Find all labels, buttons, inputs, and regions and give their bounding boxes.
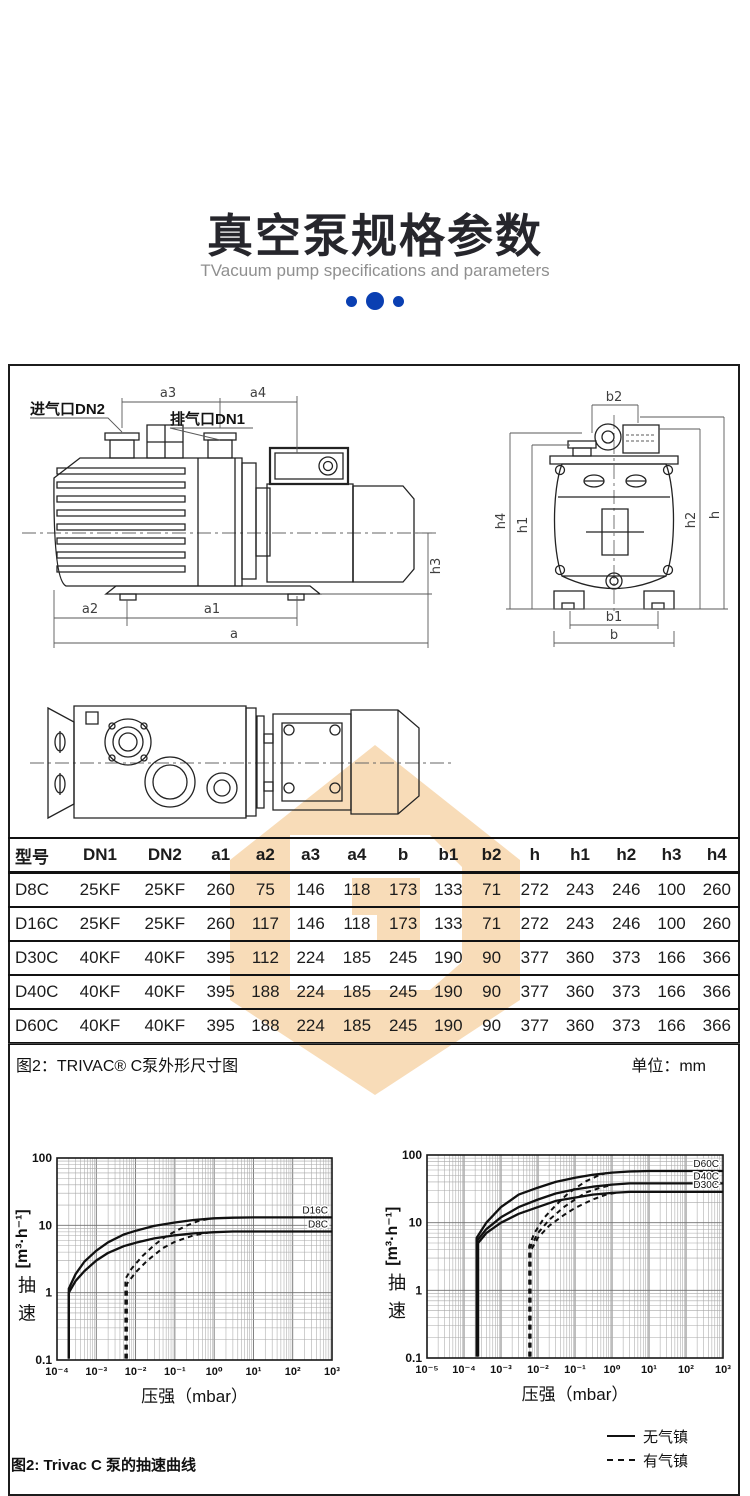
value-cell: 360 [557, 941, 603, 975]
inlet-label: 进气口DN2 [30, 400, 105, 418]
model-cell: D40C [8, 975, 68, 1009]
spec-table: 型号DN1DN2a1a2a3a4bb1b2hh1h2h3h4 D8C25KF25… [8, 837, 740, 1045]
value-cell: 272 [513, 907, 557, 941]
value-cell: 190 [426, 975, 470, 1009]
dot-icon [366, 292, 384, 310]
pumping-speed-chart-small-pumps: 10⁻⁴10⁻³10⁻²10⁻¹10⁰10¹10²10³1001010.1压强（… [8, 1143, 366, 1415]
value-cell: 118 [334, 907, 380, 941]
motor [267, 448, 414, 582]
dim-h2: h2 [684, 512, 699, 529]
value-cell: 185 [334, 1009, 380, 1044]
value-cell: 166 [649, 975, 693, 1009]
series-d60c [529, 1173, 606, 1357]
value-cell: 146 [288, 907, 334, 941]
value-cell: 377 [513, 975, 557, 1009]
y-axis-unit-label: [m³·h⁻¹] [14, 1209, 31, 1268]
value-cell: 25KF [132, 907, 198, 941]
value-cell: 71 [470, 907, 512, 941]
y-tick-label: 100 [402, 1148, 422, 1162]
x-tick-label: 10⁻² [527, 1364, 549, 1376]
value-cell: 173 [380, 907, 426, 941]
column-header: a3 [288, 838, 334, 873]
column-header: h [513, 838, 557, 873]
model-cell: D30C [8, 941, 68, 975]
table-row: D8C25KF25KF26075146118173133712722432461… [8, 873, 740, 908]
model-cell: D8C [8, 873, 68, 908]
value-cell: 360 [557, 1009, 603, 1044]
column-header: a4 [334, 838, 380, 873]
x-tick-label: 10² [678, 1364, 694, 1376]
value-cell: 373 [603, 941, 649, 975]
model-cell: D16C [8, 907, 68, 941]
dim-a1: a1 [204, 602, 220, 617]
value-cell: 243 [557, 873, 603, 908]
value-cell: 373 [603, 975, 649, 1009]
table-row: D60C40KF40KF3951882241852451909037736037… [8, 1009, 740, 1044]
series-d16c [125, 1219, 208, 1359]
legend-label: 有气镇 [643, 1450, 688, 1471]
value-cell: 377 [513, 1009, 557, 1044]
series-d30c [531, 1192, 619, 1356]
product-spec-page: 真空泵规格参数 TVacuum pump specifications and … [0, 0, 750, 1490]
dim-a3: a3 [160, 386, 176, 401]
dim-h3: h3 [429, 558, 444, 575]
dot-icon [393, 296, 404, 307]
value-cell: 366 [694, 941, 740, 975]
value-cell: 75 [243, 873, 287, 908]
value-cell: 395 [198, 1009, 243, 1044]
value-cell: 25KF [68, 907, 131, 941]
table-caption: 图2：TRIVAC® C泵外形尺寸图 [16, 1052, 238, 1076]
exhaust-port [204, 433, 236, 458]
x-tick-label: 10⁻³ [490, 1364, 512, 1376]
value-cell: 245 [380, 975, 426, 1009]
value-cell: 173 [380, 873, 426, 908]
spec-table-body: D8C25KF25KF26075146118173133712722432461… [8, 873, 740, 1044]
value-cell: 246 [603, 873, 649, 908]
column-header: a1 [198, 838, 243, 873]
x-tick-label: 10⁰ [603, 1364, 620, 1376]
x-tick-label: 10¹ [245, 1366, 261, 1378]
value-cell: 112 [243, 941, 287, 975]
x-tick-label: 10³ [324, 1366, 340, 1378]
table-header-row: 型号DN1DN2a1a2a3a4bb1b2hh1h2h3h4 [8, 838, 740, 873]
x-tick-label: 10⁻² [125, 1366, 147, 1378]
base-plate [106, 586, 320, 594]
value-cell: 246 [603, 907, 649, 941]
column-header: h2 [603, 838, 649, 873]
table-row: D16C25KF25KF2601171461181731337127224324… [8, 907, 740, 941]
y-tick-label: 10 [39, 1218, 53, 1232]
x-tick-label: 10² [285, 1366, 301, 1378]
value-cell: 366 [694, 1009, 740, 1044]
dim-h1: h1 [516, 517, 531, 534]
x-tick-label: 10⁻⁵ [415, 1364, 438, 1376]
exhaust-label: 排气口DN1 [170, 410, 245, 428]
value-cell: 133 [426, 873, 470, 908]
dim-b2: b2 [606, 390, 623, 405]
value-cell: 40KF [68, 941, 131, 975]
cooling-fins [57, 468, 185, 572]
figure-caption: 图2: Trivac C 泵的抽速曲线 [11, 1454, 196, 1475]
value-cell: 245 [380, 1009, 426, 1044]
chart-legend: 无气镇有气镇 [607, 1424, 688, 1472]
y-tick-label: 10 [409, 1216, 423, 1230]
page-title: 真空泵规格参数 [0, 200, 750, 266]
value-cell: 245 [380, 941, 426, 975]
value-cell: 188 [243, 975, 287, 1009]
column-header: 型号 [8, 838, 68, 873]
dim-b1: b1 [606, 610, 623, 625]
x-tick-label: 10⁻³ [85, 1366, 107, 1378]
value-cell: 117 [243, 907, 287, 941]
value-cell: 166 [649, 941, 693, 975]
column-header: h3 [649, 838, 693, 873]
x-axis-label: 压强（mbar） [522, 1385, 629, 1404]
value-cell: 166 [649, 1009, 693, 1044]
value-cell: 118 [334, 873, 380, 908]
x-tick-label: 10⁰ [206, 1366, 223, 1378]
y-axis-unit-label: [m³·h⁻¹] [384, 1207, 401, 1266]
value-cell: 71 [470, 873, 512, 908]
dim-h: h [708, 511, 723, 519]
column-header: h4 [694, 838, 740, 873]
x-tick-label: 10⁻¹ [564, 1364, 586, 1376]
column-header: b [380, 838, 426, 873]
value-cell: 224 [288, 1009, 334, 1044]
pump-side-view-drawing: a3 a4 a2 a1 a h3 进气口DN2 排气口DN1 [20, 368, 460, 668]
value-cell: 100 [649, 873, 693, 908]
y-tick-label: 0.1 [405, 1351, 422, 1365]
legend-item: 无气镇 [607, 1424, 688, 1448]
value-cell: 185 [334, 941, 380, 975]
column-header: DN2 [132, 838, 198, 873]
y-tick-label: 0.1 [35, 1353, 52, 1367]
y-axis-cn-label: 抽 [18, 1275, 36, 1295]
curve-label: D8C [308, 1219, 328, 1230]
value-cell: 377 [513, 941, 557, 975]
page-subtitle: TVacuum pump specifications and paramete… [0, 261, 750, 281]
value-cell: 90 [470, 941, 512, 975]
y-axis-cn-label: 抽 [388, 1273, 406, 1293]
solid-line-sample [607, 1435, 635, 1437]
value-cell: 40KF [68, 1009, 131, 1044]
dashed-line-sample [607, 1459, 635, 1461]
value-cell: 90 [470, 975, 512, 1009]
column-header: b1 [426, 838, 470, 873]
value-cell: 360 [557, 975, 603, 1009]
table-row: D30C40KF40KF3951122241852451909037736037… [8, 941, 740, 975]
column-header: h1 [557, 838, 603, 873]
unit-label: 单位：mm [631, 1052, 706, 1076]
x-tick-label: 10⁻⁴ [45, 1366, 68, 1378]
dim-a: a [230, 627, 238, 642]
value-cell: 190 [426, 1009, 470, 1044]
value-cell: 25KF [68, 873, 131, 908]
x-tick-label: 10³ [715, 1364, 731, 1376]
x-axis-label: 压强（mbar） [141, 1387, 248, 1406]
value-cell: 224 [288, 975, 334, 1009]
dim-h4: h4 [494, 513, 509, 530]
value-cell: 40KF [132, 975, 198, 1009]
value-cell: 25KF [132, 873, 198, 908]
dim-a4: a4 [250, 386, 266, 401]
y-axis-cn-label: 速 [388, 1301, 406, 1321]
y-tick-label: 100 [32, 1151, 52, 1165]
value-cell: 133 [426, 907, 470, 941]
value-cell: 40KF [68, 975, 131, 1009]
pumping-speed-chart-large-pumps: 10⁻⁵10⁻⁴10⁻³10⁻²10⁻¹10⁰10¹10²10³1001010.… [373, 1137, 743, 1413]
pump-top-view-drawing [28, 678, 458, 843]
value-cell: 40KF [132, 941, 198, 975]
value-cell: 190 [426, 941, 470, 975]
value-cell: 90 [470, 1009, 512, 1044]
value-cell: 243 [557, 907, 603, 941]
column-header: DN1 [68, 838, 131, 873]
legend-item: 有气镇 [607, 1448, 688, 1472]
value-cell: 395 [198, 975, 243, 1009]
pump-front-view-drawing: b2 h4 h1 h2 h b1 b [490, 385, 745, 650]
value-cell: 373 [603, 1009, 649, 1044]
value-cell: 260 [198, 873, 243, 908]
value-cell: 272 [513, 873, 557, 908]
value-cell: 188 [243, 1009, 287, 1044]
value-cell: 260 [694, 873, 740, 908]
value-cell: 395 [198, 941, 243, 975]
value-cell: 100 [649, 907, 693, 941]
x-tick-label: 10⁻⁴ [452, 1364, 475, 1376]
curve-label: D30C [693, 1180, 719, 1191]
dimension-lines [54, 396, 432, 648]
value-cell: 146 [288, 873, 334, 908]
dim-b: b [610, 628, 618, 643]
value-cell: 260 [198, 907, 243, 941]
value-cell: 260 [694, 907, 740, 941]
value-cell: 185 [334, 975, 380, 1009]
y-tick-label: 1 [45, 1286, 52, 1300]
legend-label: 无气镇 [643, 1426, 688, 1447]
table-row: D40C40KF40KF3951882241852451909037736037… [8, 975, 740, 1009]
x-tick-label: 10¹ [641, 1364, 657, 1376]
column-header: b2 [470, 838, 512, 873]
value-cell: 366 [694, 975, 740, 1009]
y-tick-label: 1 [415, 1283, 422, 1297]
value-cell: 224 [288, 941, 334, 975]
model-cell: D60C [8, 1009, 68, 1044]
x-tick-label: 10⁻¹ [164, 1366, 186, 1378]
inlet-port [105, 433, 139, 458]
decorative-dots [0, 292, 750, 310]
table-underline [8, 1043, 740, 1044]
curve-label: D60C [693, 1159, 719, 1170]
dim-a2: a2 [82, 602, 98, 617]
curve-label: D16C [302, 1205, 328, 1216]
value-cell: 40KF [132, 1009, 198, 1044]
column-header: a2 [243, 838, 287, 873]
dot-icon [346, 296, 357, 307]
y-axis-cn-label: 速 [18, 1303, 36, 1323]
